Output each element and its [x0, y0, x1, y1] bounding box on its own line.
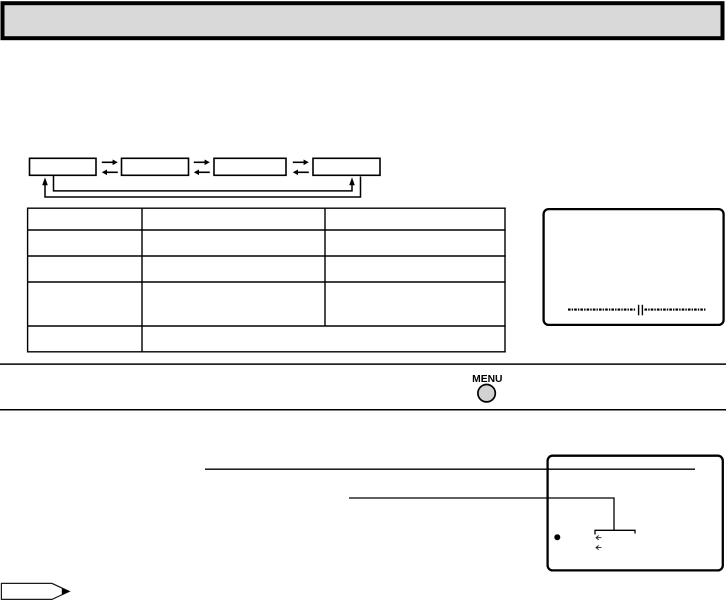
- svg-text:MENU: MENU: [472, 374, 502, 385]
